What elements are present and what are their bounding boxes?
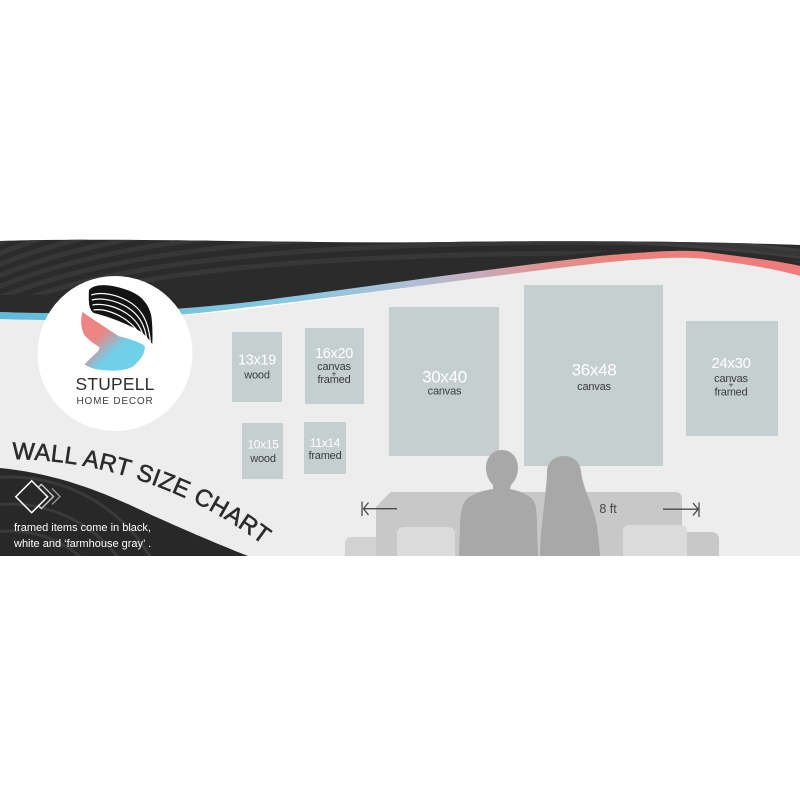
svg-text:30x40: 30x40 — [422, 368, 467, 387]
svg-text:STUPELL: STUPELL — [76, 374, 155, 394]
svg-text:canvas: canvas — [577, 381, 611, 393]
svg-text:framed: framed — [317, 374, 350, 386]
svg-text:HOME DECOR: HOME DECOR — [77, 396, 154, 407]
svg-text:8 ft: 8 ft — [599, 502, 617, 516]
svg-text:16x20: 16x20 — [315, 346, 353, 362]
svg-text:white and ‘farmhouse gray’ .: white and ‘farmhouse gray’ . — [13, 538, 151, 550]
svg-text:24x30: 24x30 — [711, 355, 750, 372]
svg-text:wood: wood — [249, 453, 276, 465]
svg-text:36x48: 36x48 — [572, 361, 617, 380]
svg-text:framed: framed — [308, 450, 341, 462]
svg-text:framed items come in black,: framed items come in black, — [14, 522, 151, 534]
svg-text:13x19: 13x19 — [238, 353, 276, 369]
svg-text:canvas: canvas — [428, 386, 462, 398]
svg-text:wood: wood — [243, 370, 270, 382]
svg-text:11x14: 11x14 — [310, 436, 341, 450]
svg-text:framed: framed — [714, 387, 747, 399]
svg-text:10x15: 10x15 — [247, 438, 279, 452]
